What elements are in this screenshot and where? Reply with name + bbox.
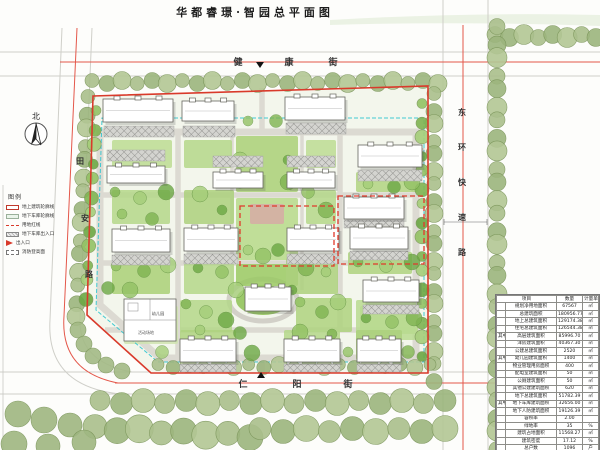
table-cell: 地下车库建筑面积 (506, 400, 557, 407)
table-cell: 180956.77 (557, 310, 583, 317)
table-row: 总建筑面积180956.77㎡ (497, 310, 599, 317)
table-cell: % (583, 422, 599, 429)
site-plan-page: 北 健康街仁阳街田安路东环快速路幼儿园活动场地 华都睿璟·智园总平面图 图例 地… (0, 0, 600, 450)
street-label: 街 (327, 56, 337, 68)
table-cell: 规划净用地面积 (506, 303, 557, 310)
table-cell: 建筑密度 (506, 437, 557, 444)
table-cell (497, 318, 506, 325)
legend: 图例 地上建筑轮廓线地下车库轮廓线用地红线地下车库出入口出入口消防登高面 (6, 192, 72, 258)
table-cell (497, 340, 506, 347)
table-cell: 50 (557, 370, 583, 377)
table-cell: 35 (557, 422, 583, 429)
garage-entrance-icon (6, 232, 19, 237)
table-row: 其中地下车库建筑面积32656.00㎡ (497, 400, 599, 407)
table-cell: 地下总建筑面积 (506, 393, 557, 400)
table-cell: 其中 (497, 333, 506, 340)
legend-item: 地下车库轮廓线 (6, 213, 72, 219)
table-cell: 其中 (497, 400, 506, 407)
street-label: 阳 (292, 379, 301, 390)
table-cell: 公建总建筑面积 (506, 348, 557, 355)
legend-item: 消防登高面 (6, 249, 72, 255)
table-cell: 洋房建筑面积 (506, 340, 557, 347)
table-cell: ㎡ (583, 378, 599, 385)
street-label: 东 (458, 107, 466, 117)
table-cell (497, 437, 506, 444)
table-header-item: 项目 (497, 296, 557, 303)
table-cell: 地下人防建筑面积 (506, 408, 557, 415)
legend-label: 地下车库轮廓线 (22, 213, 54, 219)
table-cell (497, 385, 506, 392)
legend-label: 地下车库出入口 (22, 231, 54, 237)
table-cell: 11568.27 (557, 430, 583, 437)
legend-label: 用地红线 (22, 222, 40, 228)
kindergarten-label: 幼儿园 (152, 310, 165, 317)
table-cell: 幼儿园建筑面积 (506, 355, 557, 362)
table-cell (497, 363, 506, 370)
table-row: 住宅总建筑面积126544.38㎡ (497, 325, 599, 332)
table-cell: 物业管理用房面积 (506, 363, 557, 370)
table-cell: 19126.39 (557, 408, 583, 415)
table-cell: 126544.38 (557, 325, 583, 332)
table-cell: ㎡ (583, 310, 599, 317)
table-cell: 129174.38 (557, 318, 583, 325)
table-cell: 其中 (497, 355, 506, 362)
table-cell: 32656.00 (557, 400, 583, 407)
legend-item: 地上建筑轮廓线 (6, 204, 72, 210)
table-cell: 67567 (557, 303, 583, 310)
table-cell: ㎡ (583, 318, 599, 325)
table-row: 其中幼儿园建筑面积1400㎡ (497, 355, 599, 362)
street-label: 安 (81, 213, 89, 223)
table-cell: 1400 (557, 355, 583, 362)
table-cell: % (583, 437, 599, 444)
street-label: 健 (233, 56, 242, 68)
table-cell (497, 415, 506, 422)
page-title: 华都睿璟·智园总平面图 (140, 4, 370, 20)
garage-outline-icon (6, 214, 19, 219)
table-cell: 620 (557, 385, 583, 392)
table-header-row: 项目 数量 计量单位 (497, 296, 599, 303)
table-cell (497, 393, 506, 400)
north-label: 北 (32, 112, 40, 121)
table-cell: 2.00 (557, 415, 583, 422)
table-row: 地上总建筑面积129174.38㎡ (497, 318, 599, 325)
table-cell: ㎡ (583, 370, 599, 377)
table-cell: ㎡ (583, 303, 599, 310)
table-cell: ㎡ (583, 333, 599, 340)
street-label: 环 (458, 143, 466, 152)
table-cell (497, 408, 506, 415)
legend-items: 地上建筑轮廓线地下车库轮廓线用地红线地下车库出入口出入口消防登高面 (6, 204, 72, 255)
table-row: 物业管理用房面积400㎡ (497, 363, 599, 370)
table-cell (497, 370, 506, 377)
table-cell: 1096 (557, 445, 583, 450)
table-row: 公建总建筑面积2520㎡ (497, 348, 599, 355)
table-cell: 总建筑面积 (506, 310, 557, 317)
north-arrow: 北 (25, 112, 47, 145)
table-cell: ㎡ (583, 430, 599, 437)
legend-item: 用地红线 (6, 222, 72, 228)
table-cell: 户 (583, 445, 599, 450)
table-row: 配电室建筑面积50㎡ (497, 370, 599, 377)
table-row: 容积率2.00 (497, 415, 599, 422)
table-row: 洋房建筑面积40367.30㎡ (497, 340, 599, 347)
legend-label: 消防登高面 (22, 249, 45, 255)
table-cell: 其他公建建筑面积 (506, 385, 557, 392)
table-cell: 85996.70 (557, 333, 583, 340)
table-cell: ㎡ (583, 408, 599, 415)
table-row: 建筑占地面积11568.27㎡ (497, 430, 599, 437)
table-row: 绿地率35% (497, 422, 599, 429)
table-cell: ㎡ (583, 400, 599, 407)
legend-label: 地上建筑轮廓线 (22, 204, 54, 210)
legend-item: 出入口 (6, 240, 72, 246)
table-cell: 高层建筑面积 (506, 333, 557, 340)
table-cell: ㎡ (583, 363, 599, 370)
table-header-unit: 计量单位 (583, 296, 599, 303)
table-cell: 建筑占地面积 (506, 430, 557, 437)
red-dashed-icon (6, 225, 19, 226)
table-row: 地下人防建筑面积19126.39㎡ (497, 408, 599, 415)
table-row: 地下总建筑面积51782.39㎡ (497, 393, 599, 400)
street-label: 速 (458, 212, 466, 222)
entrance-arrow-icon (6, 240, 13, 246)
table-cell (497, 430, 506, 437)
table-row: 公厕建筑面积50㎡ (497, 378, 599, 385)
table-cell: 总户数 (506, 445, 557, 450)
table-cell: 绿地率 (506, 422, 557, 429)
table-row: 规划净用地面积67567㎡ (497, 303, 599, 310)
playground-label: 活动场地 (138, 329, 154, 335)
fire-lane-icon (6, 250, 19, 255)
table-row: 总户数1096户 (497, 445, 599, 450)
legend-title: 图例 (8, 192, 72, 201)
table-cell (497, 422, 506, 429)
street-label: 仁 (238, 378, 247, 390)
table-cell (583, 415, 599, 422)
table-cell: 地上总建筑面积 (506, 318, 557, 325)
table-cell: 容积率 (506, 415, 557, 422)
legend-label: 出入口 (16, 240, 30, 246)
table-cell: ㎡ (583, 393, 599, 400)
table-row: 其他公建建筑面积620㎡ (497, 385, 599, 392)
table-cell: 50 (557, 378, 583, 385)
table-cell: 2520 (557, 348, 583, 355)
table-header-qty: 数量 (557, 296, 583, 303)
table-cell (497, 310, 506, 317)
table-cell: 51782.39 (557, 393, 583, 400)
legend-item: 地下车库出入口 (6, 231, 72, 237)
table-cell: ㎡ (583, 325, 599, 332)
table-cell: ㎡ (583, 340, 599, 347)
table-cell (497, 348, 506, 355)
table-cell (497, 303, 506, 310)
building-outline-icon (6, 205, 19, 210)
indicators-table: 项目 数量 计量单位 规划净用地面积67567㎡总建筑面积180956.77㎡地… (495, 294, 600, 450)
table-cell: 配电室建筑面积 (506, 370, 557, 377)
street-label: 快 (458, 177, 467, 187)
table-cell: ㎡ (583, 348, 599, 355)
table-cell: 400 (557, 363, 583, 370)
street-label: 路 (458, 247, 467, 257)
table-row: 其中高层建筑面积85996.70㎡ (497, 333, 599, 340)
table-cell (497, 325, 506, 332)
table-cell: 住宅总建筑面积 (506, 325, 557, 332)
table-cell: ㎡ (583, 355, 599, 362)
table-cell: 17.12 (557, 437, 583, 444)
street-label: 康 (284, 56, 294, 68)
table-cell (497, 445, 506, 450)
table-cell: ㎡ (583, 385, 599, 392)
table-cell: 公厕建筑面积 (506, 378, 557, 385)
street-label: 街 (342, 378, 352, 390)
table-cell (497, 378, 506, 385)
table-row: 建筑密度17.12% (497, 437, 599, 444)
street-label: 田 (76, 157, 84, 166)
street-label: 路 (85, 269, 94, 279)
decor-layer (330, 14, 600, 26)
table-cell: 40367.30 (557, 340, 583, 347)
